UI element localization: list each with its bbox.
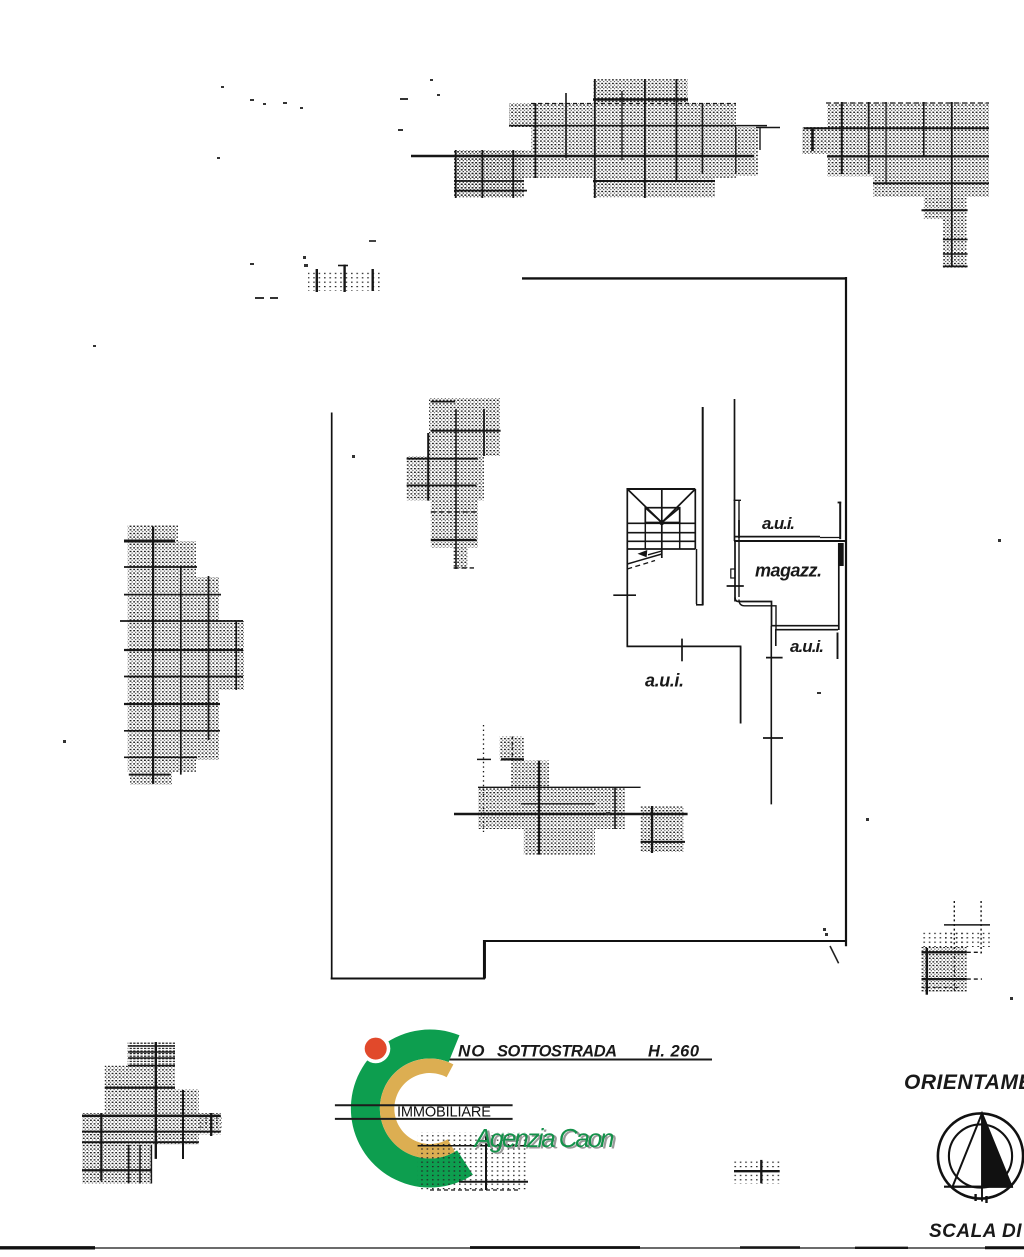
svg-text:a.u.i.: a.u.i. — [645, 671, 684, 691]
svg-text:H. 260: H. 260 — [648, 1043, 700, 1061]
svg-text:ORIENTAMENTO: ORIENTAMENTO — [904, 1071, 1024, 1094]
svg-text:magazz.: magazz. — [755, 561, 822, 581]
svg-text:Agenzia Caon: Agenzia Caon — [473, 1123, 615, 1153]
svg-text:SCALA DI: SCALA DI — [929, 1221, 1022, 1242]
svg-text:a.u.i.: a.u.i. — [790, 637, 824, 656]
svg-text:IMMOBILIARE: IMMOBILIARE — [397, 1105, 491, 1121]
svg-text:SOTTOSTRADA: SOTTOSTRADA — [497, 1043, 617, 1061]
svg-text:a.u.i.: a.u.i. — [762, 514, 795, 533]
svg-text:NO: NO — [458, 1042, 486, 1061]
